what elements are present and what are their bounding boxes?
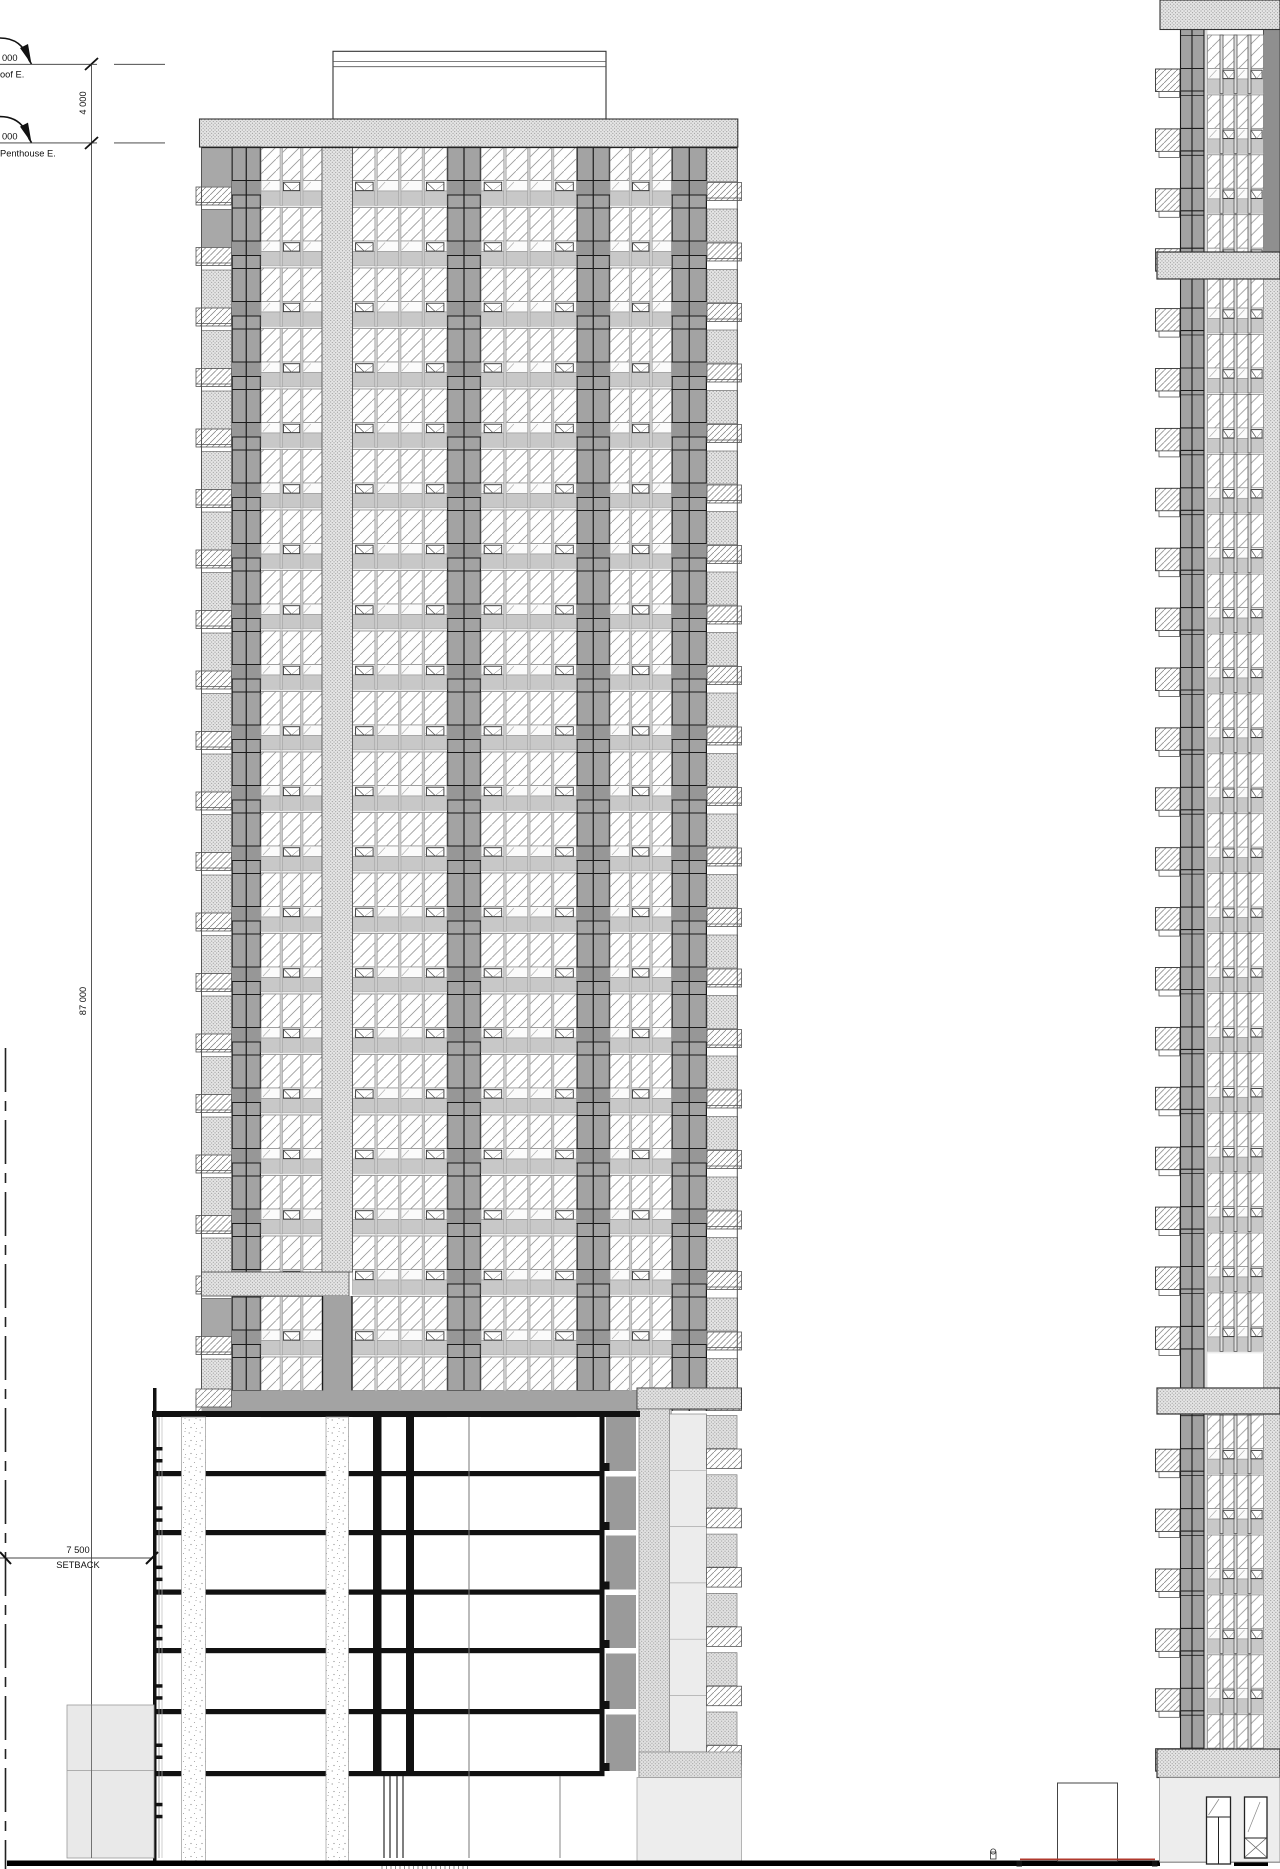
svg-text:7 500: 7 500 <box>66 1545 89 1555</box>
svg-text:000: 000 <box>2 53 18 63</box>
svg-text:000: 000 <box>2 132 18 142</box>
svg-text:SETBACK: SETBACK <box>56 1560 100 1570</box>
svg-text:4 000: 4 000 <box>78 91 88 114</box>
svg-text:oof E.: oof E. <box>0 70 24 80</box>
svg-text:87 000: 87 000 <box>78 987 88 1015</box>
svg-text:Penthouse E.: Penthouse E. <box>0 148 56 158</box>
